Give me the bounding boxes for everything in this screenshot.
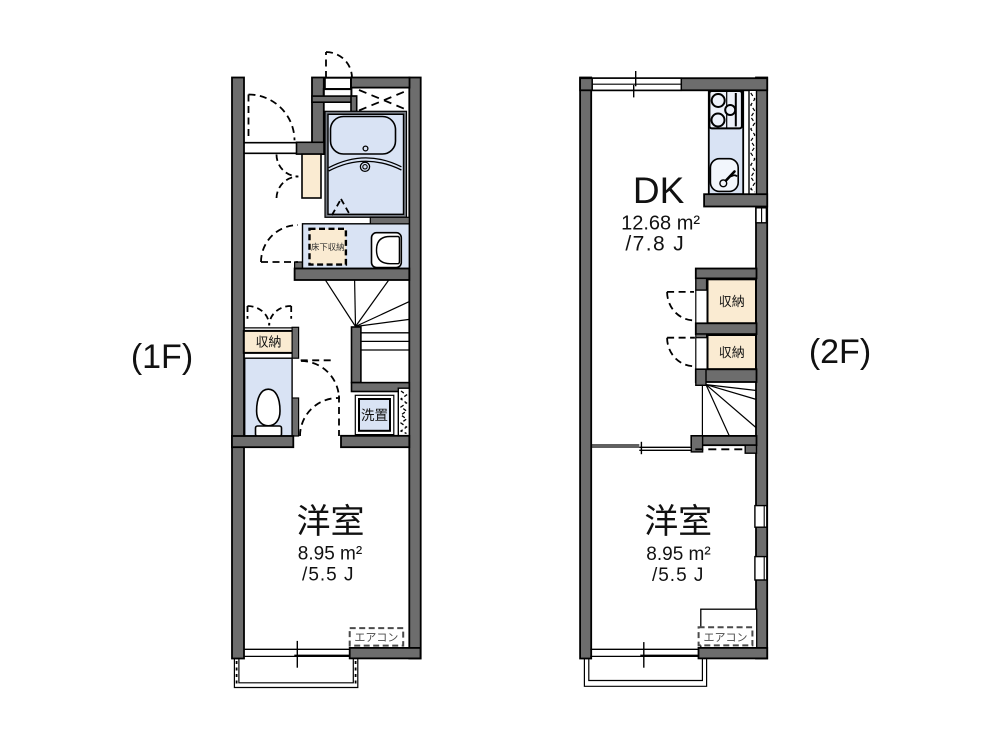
svg-text:/5.5 J: /5.5 J — [652, 565, 704, 586]
svg-text:エアコン: エアコン — [704, 632, 748, 644]
svg-text:12.68 m²: 12.68 m² — [621, 213, 700, 235]
svg-text:収納: 収納 — [719, 294, 745, 309]
svg-text:収納: 収納 — [255, 335, 281, 350]
svg-text:エアコン: エアコン — [354, 632, 398, 644]
svg-text:DK: DK — [633, 170, 685, 211]
svg-text:/5.5 J: /5.5 J — [302, 565, 354, 586]
svg-text:収納: 収納 — [719, 345, 745, 360]
svg-text:洋室: 洋室 — [297, 503, 365, 541]
svg-text:/7.8 J: /7.8 J — [625, 233, 685, 256]
svg-text:(2F): (2F) — [809, 333, 871, 371]
svg-text:8.95 m²: 8.95 m² — [298, 544, 362, 565]
svg-text:床下収納: 床下収納 — [311, 242, 345, 252]
svg-text:8.95 m²: 8.95 m² — [646, 544, 710, 565]
svg-text:(1F): (1F) — [131, 338, 193, 376]
svg-text:洋室: 洋室 — [644, 503, 712, 541]
svg-text:洗置: 洗置 — [361, 408, 388, 423]
